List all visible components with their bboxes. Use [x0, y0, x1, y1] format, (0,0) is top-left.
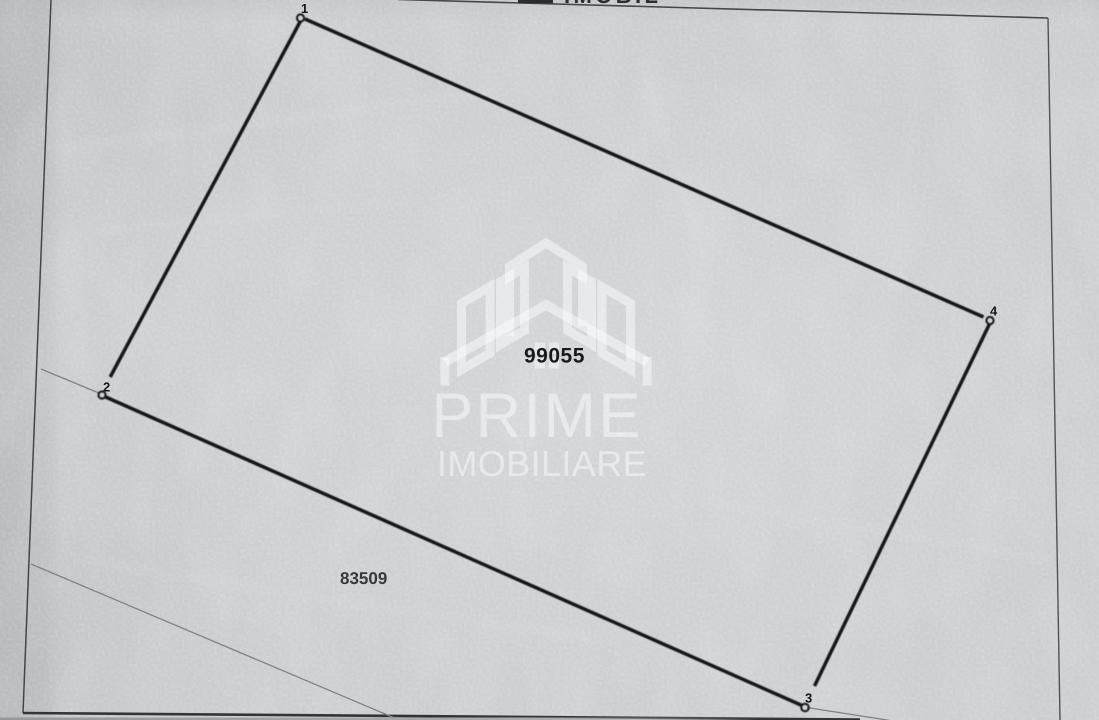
- svg-text:4: 4: [990, 304, 998, 319]
- svg-text:1: 1: [301, 1, 308, 16]
- svg-text:IMOBIL: IMOBIL: [564, 0, 661, 8]
- svg-text:PRIME: PRIME: [431, 381, 643, 451]
- svg-text:3: 3: [805, 691, 812, 706]
- svg-text:83509: 83509: [340, 569, 387, 588]
- svg-text:99055: 99055: [524, 345, 585, 368]
- svg-text:IMOBILIARE: IMOBILIARE: [437, 443, 647, 484]
- svg-text:2: 2: [103, 380, 110, 395]
